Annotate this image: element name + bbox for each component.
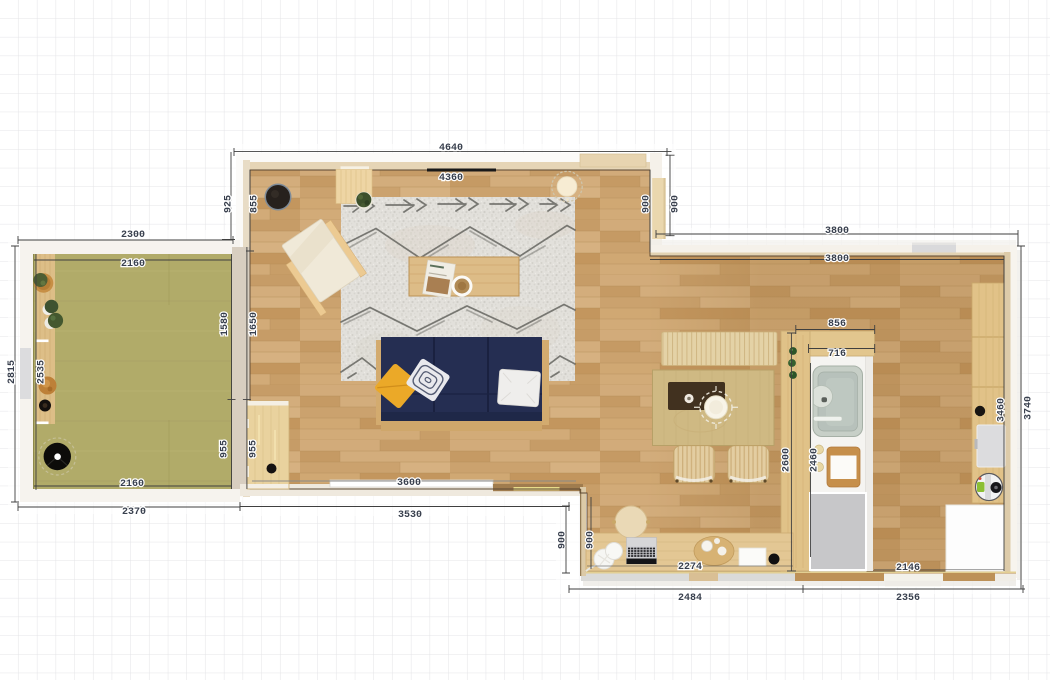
svg-text:3460: 3460 bbox=[997, 398, 1008, 422]
svg-text:2600: 2600 bbox=[782, 448, 793, 472]
svg-text:2370: 2370 bbox=[122, 507, 146, 518]
svg-text:716: 716 bbox=[828, 349, 846, 360]
svg-text:955: 955 bbox=[249, 440, 260, 458]
svg-text:3740: 3740 bbox=[1024, 396, 1035, 420]
svg-text:2274: 2274 bbox=[678, 562, 702, 573]
svg-text:856: 856 bbox=[828, 319, 846, 330]
svg-text:2146: 2146 bbox=[896, 563, 920, 574]
svg-text:2300: 2300 bbox=[121, 230, 145, 241]
svg-text:900: 900 bbox=[558, 531, 569, 549]
svg-text:1650: 1650 bbox=[249, 312, 260, 336]
svg-text:2460: 2460 bbox=[810, 448, 821, 472]
svg-text:2160: 2160 bbox=[121, 259, 145, 270]
svg-text:2484: 2484 bbox=[678, 593, 702, 604]
svg-text:955: 955 bbox=[220, 440, 231, 458]
svg-text:4640: 4640 bbox=[439, 143, 463, 154]
svg-text:855: 855 bbox=[250, 195, 261, 213]
svg-text:2356: 2356 bbox=[896, 593, 920, 604]
svg-text:1580: 1580 bbox=[220, 312, 231, 336]
svg-text:2160: 2160 bbox=[120, 479, 144, 490]
svg-text:2535: 2535 bbox=[37, 360, 48, 384]
svg-text:3800: 3800 bbox=[825, 254, 849, 265]
svg-text:900: 900 bbox=[586, 531, 597, 549]
svg-text:3800: 3800 bbox=[825, 226, 849, 237]
svg-text:925: 925 bbox=[224, 195, 235, 213]
svg-text:2815: 2815 bbox=[7, 360, 18, 384]
svg-text:3530: 3530 bbox=[398, 510, 422, 521]
svg-text:3600: 3600 bbox=[397, 478, 421, 489]
svg-text:900: 900 bbox=[642, 195, 653, 213]
svg-text:900: 900 bbox=[671, 195, 682, 213]
svg-text:4360: 4360 bbox=[439, 173, 463, 184]
